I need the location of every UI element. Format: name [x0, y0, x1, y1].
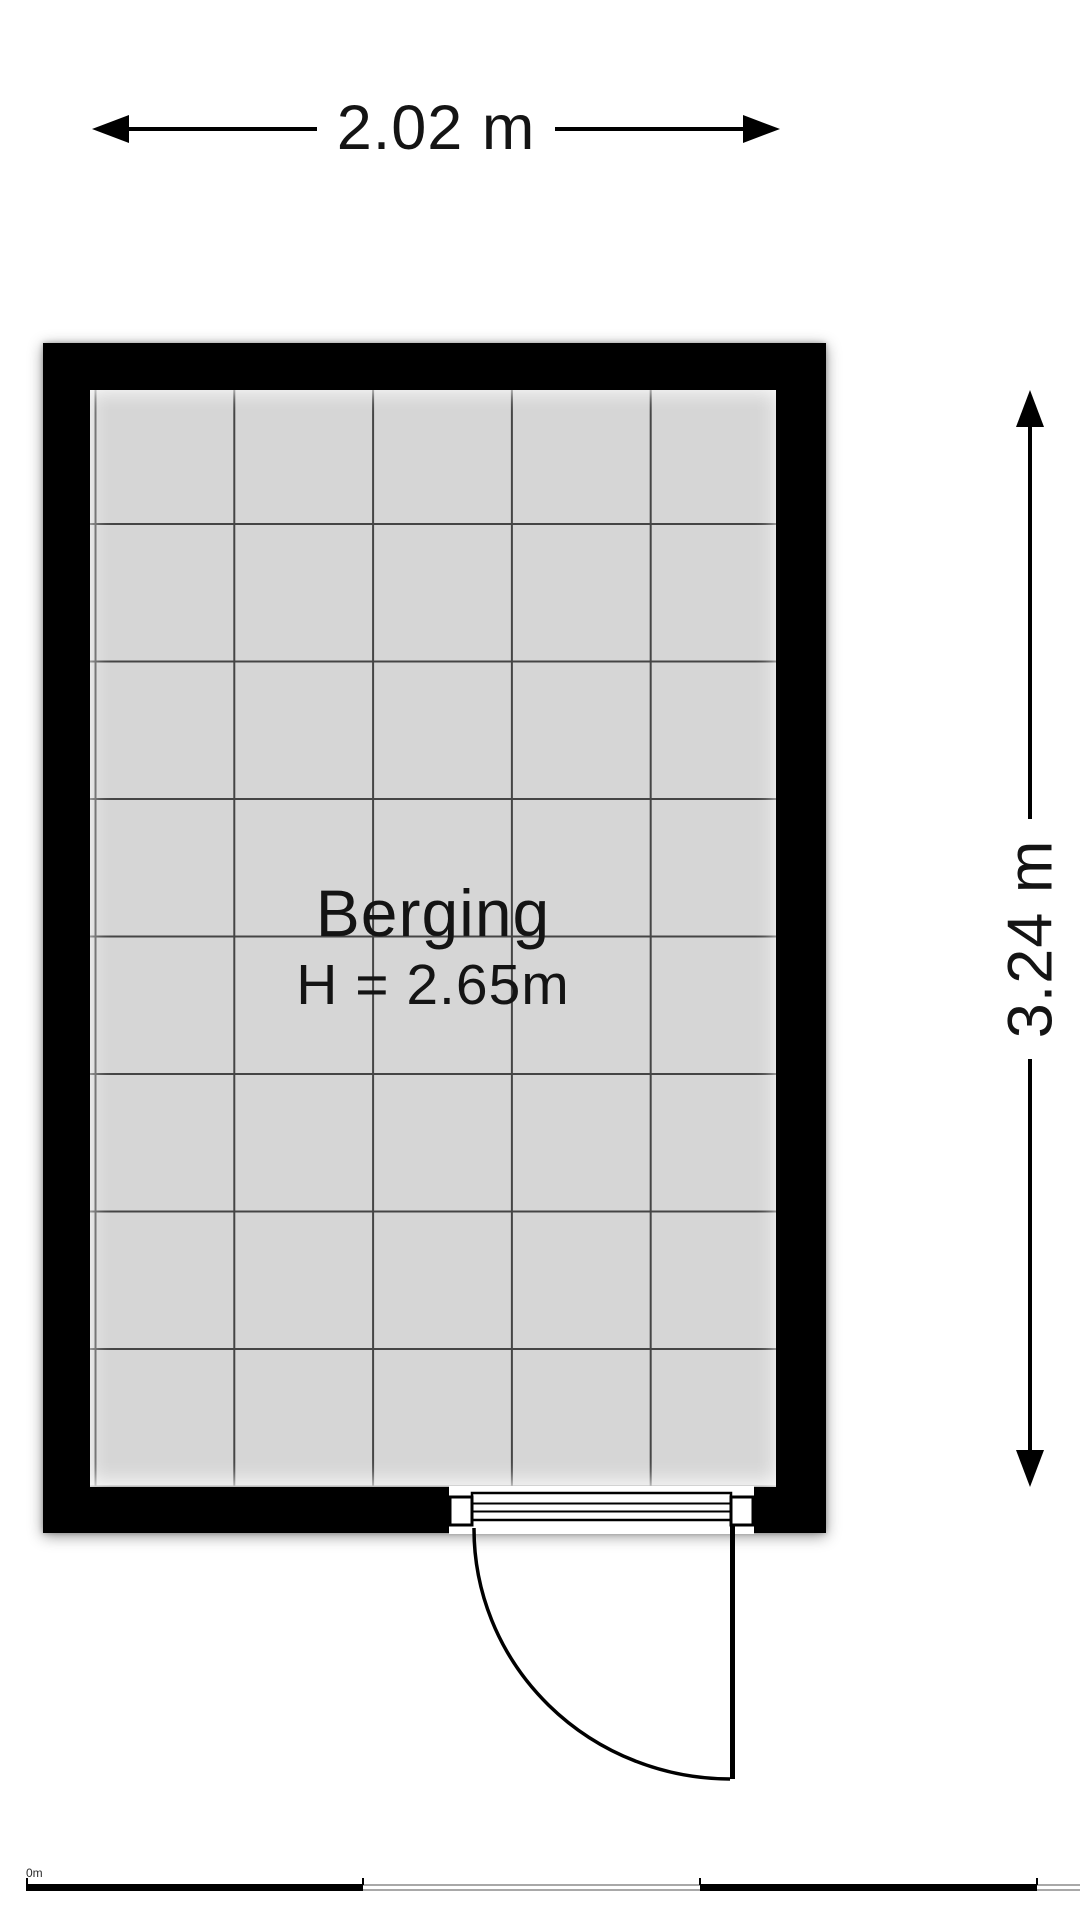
scalebar-tick [1036, 1878, 1038, 1885]
scalebar-tick [362, 1878, 364, 1885]
dimension-line [1028, 1059, 1032, 1451]
scale-bar [26, 1884, 1080, 1891]
scalebar-segment-open [1037, 1884, 1080, 1891]
door-threshold [472, 1493, 731, 1520]
door-overlay [0, 0, 1080, 1920]
depth-dimension-labelwrap: 3.24 m [1001, 819, 1059, 1059]
scalebar-zero-label: 0m [26, 1866, 43, 1880]
door [449, 1486, 754, 1779]
scalebar-segment-filled [700, 1884, 1037, 1891]
floorplan-canvas: 2.02 m Berging H = 2.65m 3.24 m [0, 0, 1080, 1920]
dimension-line [1028, 427, 1032, 819]
door-post-right [731, 1497, 753, 1525]
scalebar-segment-open [363, 1884, 700, 1891]
depth-dimension-label: 3.24 m [994, 839, 1066, 1038]
scalebar-tick [699, 1878, 701, 1885]
depth-dimension: 3.24 m [1001, 390, 1059, 1487]
door-swing-arc [474, 1528, 730, 1779]
scalebar-segment-filled [26, 1884, 363, 1891]
door-post-left [450, 1497, 472, 1525]
scalebar-tick [26, 1878, 28, 1885]
arrowhead-down-icon [1016, 1450, 1044, 1487]
arrowhead-up-icon [1016, 390, 1044, 427]
